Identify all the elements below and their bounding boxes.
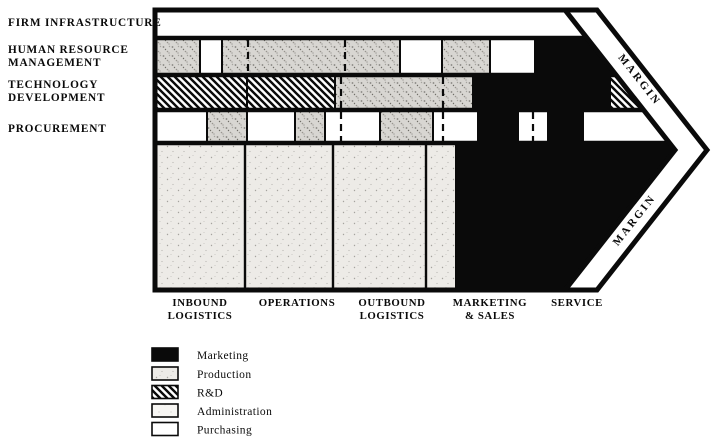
legend-swatch-purchasing (152, 423, 178, 436)
label-technology: TECHNOLOGY (8, 79, 98, 91)
hrm-admin-block (442, 38, 490, 75)
primary-production-area (155, 143, 455, 290)
label-service: SERVICE (551, 297, 603, 309)
legend-swatch-administration (152, 404, 178, 417)
legend-label-purchasing: Purchasing (197, 425, 252, 437)
label-inbound: INBOUND (172, 297, 227, 309)
value-chain-canvas: MARGIN MARGIN FIRM INFRASTRUCTURE HUMAN … (0, 0, 717, 439)
label-management: MANAGEMENT (8, 57, 101, 69)
td-rnd-block (155, 75, 335, 110)
legend-label-production: Production (197, 369, 251, 381)
label-marketing: MARKETING (453, 297, 527, 309)
label-procurement: PROCUREMENT (8, 123, 107, 135)
label-outbound: OUTBOUND (358, 297, 425, 309)
legend-swatch-rnd (152, 386, 178, 399)
legend: Marketing Production R&D Administration … (152, 348, 272, 437)
legend-swatch-production (152, 367, 178, 380)
label-outbound-logistics: LOGISTICS (360, 310, 425, 322)
value-chain-figure: MARGIN MARGIN FIRM INFRASTRUCTURE HUMAN … (0, 0, 717, 439)
label-inbound-logistics: LOGISTICS (168, 310, 233, 322)
label-marketing-sales: & SALES (465, 310, 515, 322)
label-development: DEVELOPMENT (8, 92, 105, 104)
td-marketing-block (473, 75, 610, 110)
legend-label-administration: Administration (197, 406, 272, 418)
td-admin-block (335, 75, 473, 110)
legend-swatch-marketing (152, 348, 178, 361)
proc-marketing-block (548, 110, 583, 143)
label-firm-infrastructure: FIRM INFRASTRUCTURE (8, 17, 162, 29)
label-operations: OPERATIONS (259, 297, 336, 309)
proc-stipple-block (295, 110, 325, 143)
proc-stipple-block (380, 110, 433, 143)
proc-stipple-block (207, 110, 247, 143)
hrm-admin-block (155, 38, 200, 75)
legend-label-marketing: Marketing (197, 350, 249, 362)
legend-label-rnd: R&D (197, 388, 223, 400)
proc-marketing-block (478, 110, 518, 143)
label-human-resource: HUMAN RESOURCE (8, 44, 129, 56)
